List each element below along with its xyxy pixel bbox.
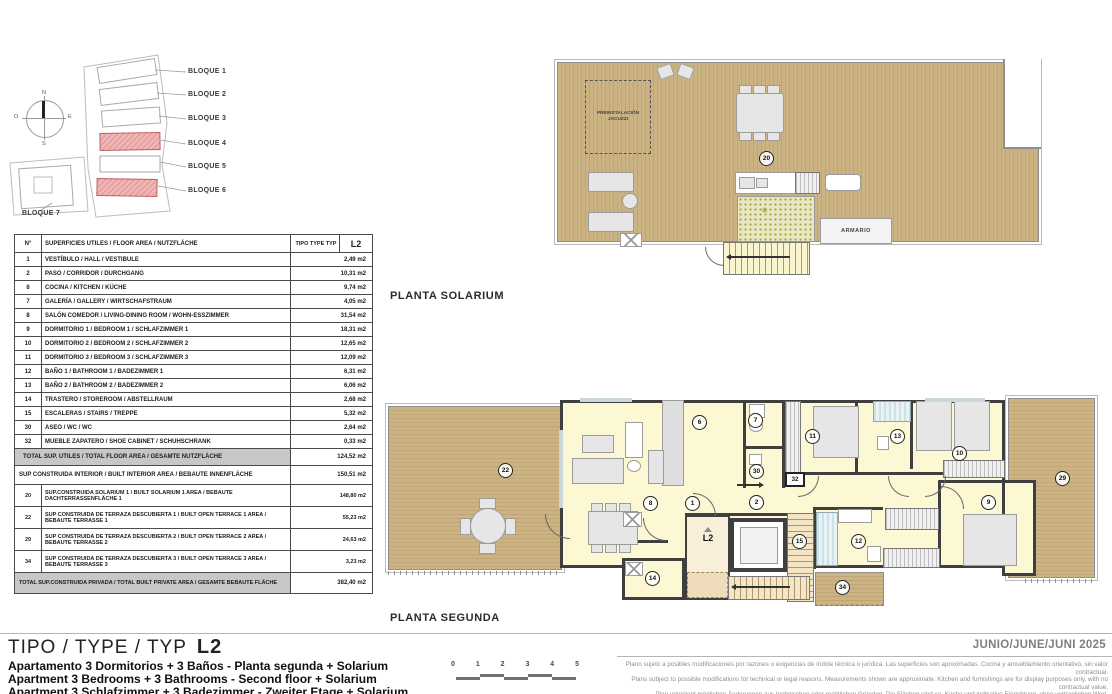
scale-tick: 4 — [550, 661, 554, 668]
legal-disclaimer: Plano sujeto a posibles modificaciones p… — [604, 661, 1108, 694]
room-number-bed2: 10 — [952, 446, 967, 461]
row-desc: BAÑO 1 / BATHROOM 1 / BADEZIMMER 1 — [42, 365, 291, 379]
bench — [825, 174, 861, 191]
tv-cabinet — [625, 422, 643, 458]
chair — [505, 518, 516, 535]
terrace-1-edge-ticks — [388, 571, 560, 575]
stair-arrow-head — [731, 584, 736, 590]
chair — [605, 503, 617, 512]
chair — [605, 544, 617, 553]
row-num: 20 — [15, 485, 42, 507]
outdoor-dining-table — [736, 93, 784, 133]
date-divider — [617, 656, 1112, 657]
row-desc: DORMITORIO 3 / BEDROOM 3 / SCHLAFZIMMER … — [42, 351, 291, 365]
row-desc: ESCALERAS / STAIRS / TREPPE — [42, 407, 291, 421]
bed-double — [963, 514, 1017, 566]
scale-segment — [504, 677, 528, 680]
row-num: 34 — [15, 551, 42, 573]
chair — [753, 132, 766, 141]
row-num: 8 — [15, 309, 42, 323]
compass-south-label: S — [42, 141, 46, 147]
bloque-7-label: BLOQUE 7 — [22, 210, 60, 217]
compass-circle — [26, 100, 64, 138]
row-num: 9 — [15, 323, 42, 337]
chair — [739, 132, 752, 141]
footer-divider — [0, 633, 1112, 634]
room-number-bed3: 11 — [805, 429, 820, 444]
terrace-2-edge-ticks — [1025, 579, 1093, 583]
row-desc: ASEO / WC / WC — [42, 421, 291, 435]
bloque-4-label: BLOQUE 4 — [188, 140, 226, 147]
room-number-terrace2: 29 — [1055, 471, 1070, 486]
room-number-hall: 1 — [685, 496, 700, 511]
wall — [743, 446, 785, 449]
chair — [591, 503, 603, 512]
stair-direction-arrow — [730, 256, 790, 258]
chair — [460, 518, 471, 535]
row-desc: DORMITORIO 1 / BEDROOM 1 / SCHLAFZIMMER … — [42, 323, 291, 337]
disclaimer-en: Plans subject to possible modifications … — [604, 676, 1108, 691]
row-num: 30 — [15, 421, 42, 435]
wardrobe — [943, 460, 1005, 478]
bed-double — [813, 406, 859, 458]
chair — [479, 498, 496, 509]
compass-west-label: O — [14, 114, 18, 120]
side-table — [622, 193, 638, 209]
col-header-type-code: L2 — [340, 235, 373, 253]
compass-east-label: E — [68, 114, 72, 120]
bath-vanity — [838, 509, 872, 523]
solarium-notch — [1003, 59, 1041, 149]
kitchen-island — [648, 450, 664, 484]
row-desc: SALÓN COMEDOR / LIVING-DINING ROOM / WOH… — [42, 309, 291, 323]
chair — [591, 544, 603, 553]
row-value: 2,49 m2 — [291, 253, 373, 267]
col-header-num: N° — [15, 235, 42, 253]
stairs-horizontal-run — [728, 576, 810, 600]
chair — [753, 85, 766, 94]
scale-segment — [480, 674, 504, 677]
total-private-label: TOTAL SUP.CONSTRUIDA PRIVADA / TOTAL BUI… — [15, 573, 291, 594]
sheet-date: JUNIO/JUNE/JUNI 2025 — [806, 639, 1106, 651]
solarium-plan: PREINSTALACIÓN JACUZZI 20 ARMARIO — [550, 55, 1062, 283]
sheet-description: Apartamento 3 Dormitorios + 3 Baños - Pl… — [8, 660, 408, 694]
kitchen-counter — [662, 400, 684, 486]
coffee-table — [627, 460, 641, 472]
type-code: L2 — [197, 636, 222, 658]
row-value: 12,65 m2 — [291, 337, 373, 351]
stair-arrow-head — [726, 254, 731, 260]
row-value: 0,33 m2 — [291, 435, 373, 449]
row-value: 31,54 m2 — [291, 309, 373, 323]
row-value: 5,32 m2 — [291, 407, 373, 421]
total-utiles-value: 124,52 m2 — [291, 449, 373, 466]
chair — [479, 543, 496, 554]
room-number-stairs: 15 — [792, 534, 807, 549]
chair — [767, 132, 780, 141]
bloque-6-label: BLOQUE 6 — [188, 187, 226, 194]
row-desc: GALERÍA / GALLERY / WIRTSCHAFSTRAUM — [42, 295, 291, 309]
chair — [619, 503, 631, 512]
type-title-text: TIPO / TYPE / TYP — [8, 637, 187, 658]
entry-landing — [687, 572, 728, 598]
jacuzzi-preinstall-area: PREINSTALACIÓN JACUZZI — [585, 80, 651, 154]
row-num: 10 — [15, 337, 42, 351]
elevator-car — [740, 527, 778, 564]
wall — [743, 400, 746, 488]
room-number-storeroom: 14 — [645, 571, 660, 586]
room-number-bath2: 13 — [890, 429, 905, 444]
washing-machine — [623, 512, 642, 527]
grill — [756, 178, 768, 188]
row-num: 29 — [15, 529, 42, 551]
row-desc: COCINA / KITCHEN / KÜCHE — [42, 281, 291, 295]
built-interior-value: 150,51 m2 — [291, 466, 373, 485]
room-number-terrace3: 34 — [835, 580, 850, 595]
row-desc: MUEBLE ZAPATERO / SHOE CABINET / SCHUHSC… — [42, 435, 291, 449]
col-header-desc: SUPERFICIES UTILES / FLOOR AREA / NUTZFL… — [42, 235, 291, 253]
second-floor-plan: L2 — [385, 396, 1110, 626]
wardrobe — [785, 401, 801, 473]
planter-bed — [737, 196, 815, 242]
shower — [816, 512, 838, 566]
bed-single — [916, 401, 952, 451]
row-value: 2,68 m2 — [291, 393, 373, 407]
row-value: 9,74 m2 — [291, 281, 373, 295]
compass-north-label: N — [42, 90, 46, 96]
row-desc: DORMITORIO 2 / BEDROOM 2 / SCHLAFZIMMER … — [42, 337, 291, 351]
row-num: 32 — [15, 435, 42, 449]
unit-marker: L2 — [697, 527, 719, 543]
room-number-wc: 30 — [749, 464, 764, 479]
description-de: Apartment 3 Schlafzimmer + 3 Badezimmer … — [8, 686, 408, 694]
row-value: 6,06 m2 — [291, 379, 373, 393]
location-plan: N E S O BLOQUE 1 BLOQUE 2 BLOQUE 3 BLOQU… — [8, 45, 258, 230]
scale-tick: 2 — [501, 661, 505, 668]
scale-tick: 1 — [476, 661, 480, 668]
plan-sheet: N E S O BLOQUE 1 BLOQUE 2 BLOQUE 3 BLOQU… — [0, 0, 1112, 694]
entrance-arrow-head — [759, 482, 764, 488]
wall — [938, 480, 1005, 483]
room-number-terrace1: 22 — [498, 463, 513, 478]
row-value: 12,09 m2 — [291, 351, 373, 365]
scale-segment — [528, 674, 552, 677]
unit-marker-arrow-icon — [704, 527, 712, 532]
bloque-2-label: BLOQUE 2 — [188, 91, 226, 98]
row-value: 148,80 m2 — [291, 485, 373, 507]
row-desc: SUP CONSTRUIDA DE TERRAZA DESCUBIERTA 2 … — [42, 529, 291, 551]
sun-lounger — [588, 212, 634, 232]
row-num: 7 — [15, 295, 42, 309]
sofa — [572, 458, 624, 484]
lounge-chair — [582, 435, 614, 453]
bloque-3-label: BLOQUE 3 — [188, 115, 226, 122]
row-num: 22 — [15, 507, 42, 529]
window — [580, 398, 632, 402]
col-header-tipo: TIPO TYPE TYP — [291, 235, 340, 253]
total-private-value: 382,40 m2 — [291, 573, 373, 594]
sun-lounger — [588, 172, 634, 192]
row-num: 15 — [15, 407, 42, 421]
scale-tick: 5 — [575, 661, 579, 668]
terrace-1 — [388, 406, 562, 570]
row-num: 1 — [15, 253, 42, 267]
armario-closet: ARMARIO — [820, 218, 892, 244]
scale-segment — [552, 677, 576, 680]
room-number-solarium: 20 — [759, 151, 774, 166]
elevator — [730, 518, 787, 572]
entrance-arrow — [737, 484, 761, 486]
row-value: 2,64 m2 — [291, 421, 373, 435]
terrace-sliding-door — [559, 430, 563, 508]
stair-direction-arrow — [735, 586, 790, 588]
room-number-kitchen: 6 — [692, 415, 707, 430]
row-num: 13 — [15, 379, 42, 393]
ac-unit — [620, 233, 642, 247]
row-desc: SUP CONSTRUIDA DE TERRAZA DESCUBIERTA 1 … — [42, 507, 291, 529]
door-swing-arc — [705, 247, 724, 266]
row-num: 11 — [15, 351, 42, 365]
unit-code-label: L2 — [703, 533, 714, 543]
row-value: 24,63 m2 — [291, 529, 373, 551]
bathtub — [867, 546, 881, 562]
row-num: 2 — [15, 267, 42, 281]
row-value: 55,23 m2 — [291, 507, 373, 529]
row-num: 14 — [15, 393, 42, 407]
row-value: 18,31 m2 — [291, 323, 373, 337]
disclaimer-es: Plano sujeto a posibles modificaciones p… — [604, 661, 1108, 676]
row-value: 3,23 m2 — [291, 551, 373, 573]
row-num: 6 — [15, 281, 42, 295]
row-desc: BAÑO 2 / BATHROOM 2 / BADEZIMMER 2 — [42, 379, 291, 393]
areas-table: N° SUPERFICIES UTILES / FLOOR AREA / NUT… — [14, 234, 373, 594]
row-desc: PASO / CORRIDOR / DURCHGANG — [42, 267, 291, 281]
bloque-5-label: BLOQUE 5 — [188, 163, 226, 170]
toilet — [877, 436, 889, 450]
row-value: 4,05 m2 — [291, 295, 373, 309]
sheet-type-title: TIPO / TYPE / TYPL2 — [8, 636, 222, 659]
scale-bar-numbers: 0 1 2 3 4 5 — [451, 661, 579, 668]
chair — [619, 544, 631, 553]
row-desc: VESTÍBULO / HALL / VESTIBULE — [42, 253, 291, 267]
row-value: 10,31 m2 — [291, 267, 373, 281]
wardrobe — [885, 508, 939, 530]
chair — [739, 85, 752, 94]
solarium-plan-label: PLANTA SOLARIUM — [390, 290, 504, 302]
bed-single — [954, 401, 990, 451]
total-utiles-label: TOTAL SUP. UTILES / TOTAL FLOOR AREA / G… — [15, 449, 291, 466]
room-number-corridor: 2 — [749, 495, 764, 510]
sink — [739, 177, 755, 189]
built-interior-label: SUP CONSTRUIDA INTERIOR / BUILT INTERIOR… — [15, 466, 291, 485]
row-num: 12 — [15, 365, 42, 379]
compass-rose-icon: N E S O — [22, 96, 66, 140]
room-number-shoe-cabinet: 32 — [785, 472, 805, 487]
wardrobe — [883, 548, 940, 568]
terrace-round-table — [470, 508, 506, 544]
compass-needle — [42, 101, 45, 118]
room-number-bed1: 9 — [981, 495, 996, 510]
bloque-1-label: BLOQUE 1 — [188, 68, 226, 75]
solarium-stairs — [723, 242, 810, 275]
row-desc: SUP.CONSTRUIDA SOLARIUM 1 / BUILT SOLARI… — [42, 485, 291, 507]
row-value: 6,31 m2 — [291, 365, 373, 379]
storeroom-appliance — [625, 562, 643, 576]
scale-bar — [456, 674, 576, 681]
shower — [873, 401, 911, 422]
room-number-living: 8 — [643, 496, 658, 511]
room-number-gallery: 7 — [748, 413, 763, 428]
row-desc: SUP CONSTRUIDA DE TERRAZA DESCUBIERTA 3 … — [42, 551, 291, 573]
chair — [767, 85, 780, 94]
counter-end — [795, 172, 820, 194]
row-desc: TRASTERO / STOREROOM / ABSTELLRAUM — [42, 393, 291, 407]
room-number-bath1: 12 — [851, 534, 866, 549]
window — [925, 398, 985, 402]
scale-segment — [456, 677, 480, 680]
scale-tick: 3 — [525, 661, 529, 668]
scale-tick: 0 — [451, 661, 455, 668]
